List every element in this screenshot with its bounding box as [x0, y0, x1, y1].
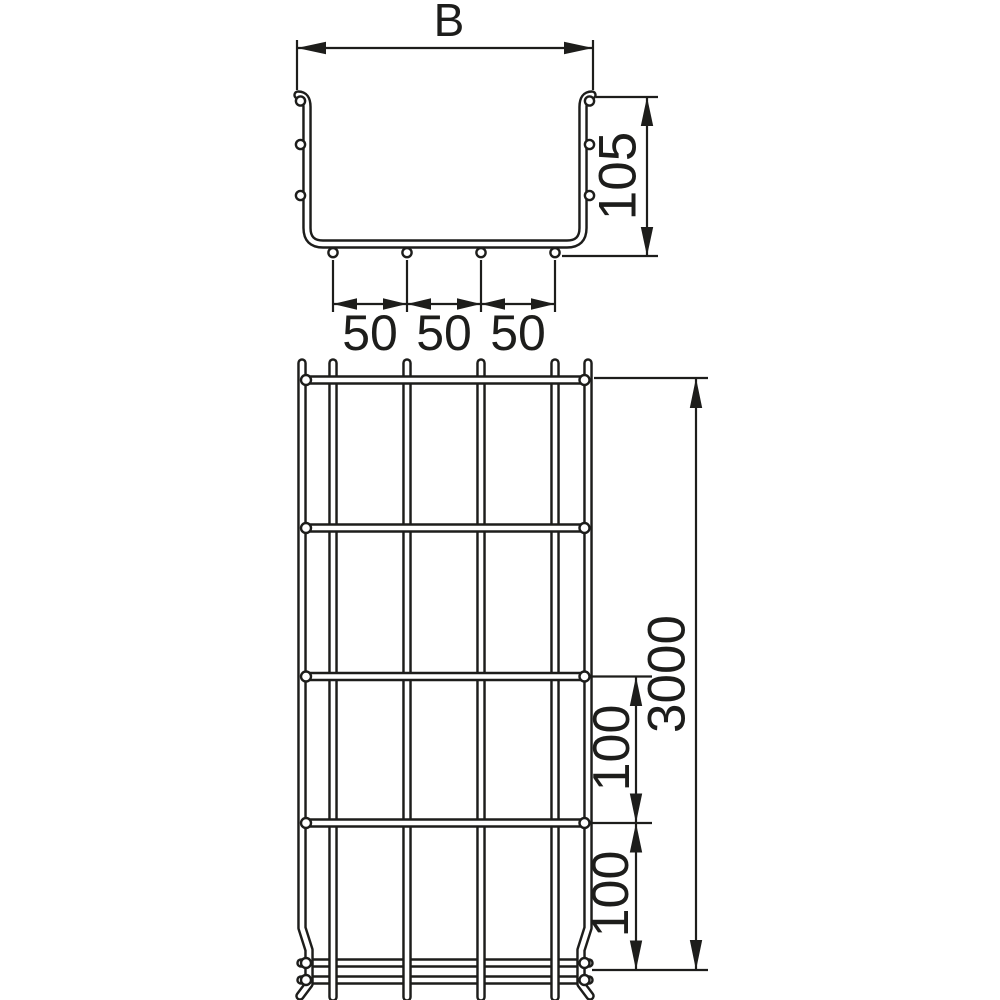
- dim-label-spacing-1: 50: [342, 305, 398, 361]
- dim-label-length: 3000: [638, 615, 697, 733]
- dim-label-spacing-3: 50: [490, 305, 546, 361]
- rung-end-dot: [301, 818, 311, 828]
- arrowhead: [630, 823, 642, 853]
- dim-label-pitch-lower: 100: [582, 851, 640, 938]
- rung-end-dot: [301, 375, 311, 385]
- arrowhead: [564, 42, 593, 54]
- arrowhead: [690, 940, 702, 970]
- wire-dot: [476, 248, 485, 257]
- rung-end-dot: [301, 672, 311, 682]
- arrowhead: [641, 227, 653, 256]
- dim-label-height: 105: [589, 132, 648, 220]
- mesh-cable-tray-drawing: B 105 50 50 50: [0, 0, 1000, 1000]
- rung-end-dot: [580, 975, 590, 985]
- dimension-width-B: B: [297, 0, 593, 90]
- wire-dot: [585, 96, 594, 105]
- rung-end-dot: [580, 818, 590, 828]
- rung-end-dot: [580, 958, 590, 968]
- wire-dot: [296, 96, 305, 105]
- wire-dot: [328, 248, 337, 257]
- wire-dot: [296, 191, 305, 200]
- cross-section-view: [296, 95, 594, 257]
- arrowhead: [630, 794, 642, 824]
- rung-end-dot: [580, 375, 590, 385]
- rung-end-dot: [301, 523, 311, 533]
- rung-end-dot: [301, 958, 311, 968]
- wire-dot: [402, 248, 411, 257]
- plan-view: [300, 363, 590, 997]
- dim-label-pitch-upper: 100: [583, 705, 641, 792]
- arrowhead: [630, 941, 642, 971]
- arrowhead: [641, 97, 653, 126]
- channel-profile: [298, 95, 592, 244]
- wire-dot: [550, 248, 559, 257]
- dim-label-width: B: [434, 0, 465, 46]
- technical-drawing-page: B 105 50 50 50: [0, 0, 1000, 1000]
- wire-dot: [296, 140, 305, 149]
- arrowhead: [297, 42, 326, 54]
- rung-end-dot: [580, 523, 590, 533]
- dim-label-spacing-2: 50: [416, 305, 472, 361]
- arrowhead: [690, 378, 702, 408]
- rung-end-dot: [580, 672, 590, 682]
- rung-end-dot: [301, 975, 311, 985]
- dimension-height-105: 105: [562, 97, 658, 256]
- channel-profile: [298, 95, 592, 244]
- dimension-spacing-50: 50 50 50: [333, 260, 555, 361]
